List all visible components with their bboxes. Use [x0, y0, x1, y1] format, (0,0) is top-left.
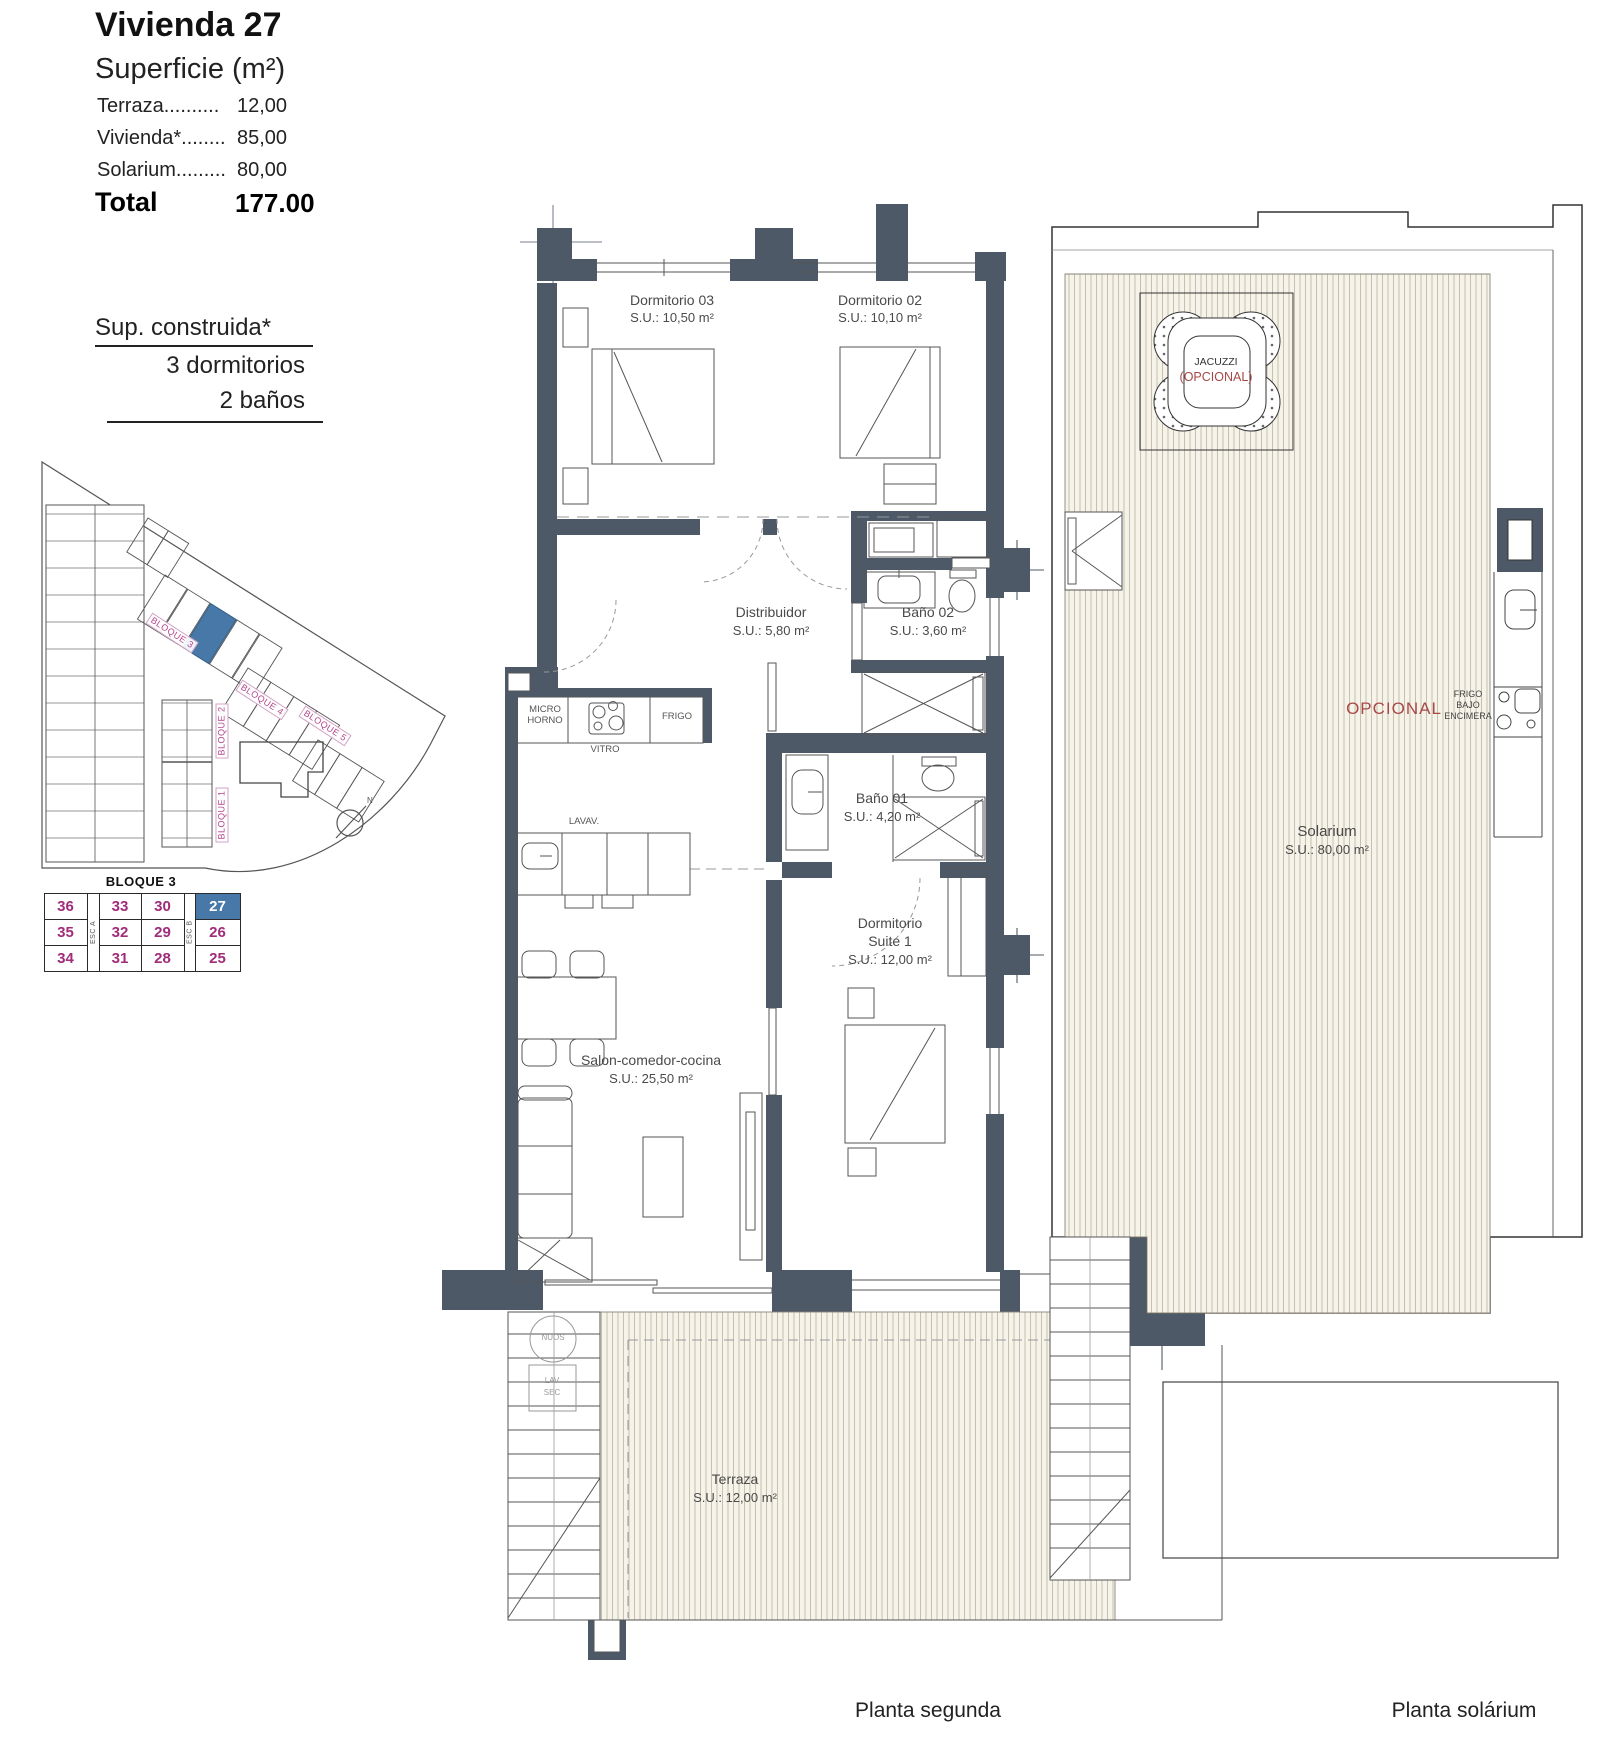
unit-cell: 36 — [44, 893, 88, 920]
room-label-dorm02: Dormitorio 02 — [838, 293, 922, 308]
total-value: 177.00 — [235, 190, 315, 217]
room-area-dorm03: S.U.: 10,50 m² — [630, 311, 714, 325]
surface-row-label: Solarium......... — [97, 159, 226, 182]
main-plan-stairs — [508, 1312, 600, 1620]
surface-row-value: 12,00 — [237, 95, 287, 118]
total-label: Total — [95, 188, 158, 216]
room-area-dorm02: S.U.: 10,10 m² — [838, 311, 922, 325]
room-label-suite-line2: Suite 1 — [868, 934, 912, 949]
fixture-label-vitro: VITRO — [590, 745, 619, 755]
svg-text:N: N — [367, 796, 373, 805]
room-label-dorm03: Dormitorio 03 — [630, 293, 714, 308]
unit-cell: 35 — [44, 919, 88, 946]
main-plan-furniture — [516, 308, 989, 1282]
room-label-suite-line1: Dormitorio — [858, 916, 923, 931]
divider — [107, 421, 323, 423]
jacuzzi-optional-label: (OPCIONAL) — [1180, 371, 1253, 384]
site-label-bloque2: BLOQUE 2 — [216, 703, 229, 758]
room-area-suite: S.U.: 12,00 m² — [848, 953, 932, 967]
room-label-bano01: Baño 01 — [856, 791, 908, 806]
fixture-label-lavav: LAVAV. — [569, 817, 599, 827]
fixture-label-micro: MICRO — [529, 705, 561, 715]
unit-cell: 29 — [141, 919, 185, 946]
fixture-label-frigo: FRIGO — [662, 712, 692, 722]
page-title: Vivienda 27 — [95, 8, 282, 44]
room-label-terraza: Terraza — [712, 1472, 759, 1487]
site-label-bloque1: BLOQUE 1 — [216, 787, 229, 842]
room-label-distribuidor: Distribuidor — [736, 605, 807, 620]
unit-cell: 31 — [99, 945, 142, 972]
bedrooms-count: 3 dormitorios — [95, 352, 305, 380]
surface-row-label: Vivienda*........ — [97, 127, 226, 150]
stair-core-b-label: ESC B — [184, 893, 196, 972]
opcional-label: OPCIONAL — [1346, 700, 1442, 718]
fixture-label-nuos: NUOS — [541, 1334, 564, 1342]
frigo-bajo-label-2: BAJO — [1456, 701, 1480, 710]
built-surface-title: Sup. construida* — [95, 314, 313, 347]
room-area-bano02: S.U.: 3,60 m² — [890, 624, 967, 638]
jacuzzi-label: JACUZZI — [1194, 357, 1237, 368]
unit-cell: 33 — [99, 893, 142, 920]
site-plan-drawing: N — [42, 462, 445, 872]
room-area-salon: S.U.: 25,50 m² — [609, 1072, 693, 1086]
unit-cell: 34 — [44, 945, 88, 972]
unit-cell: 28 — [141, 945, 185, 972]
fixture-label-lav: LAV — [545, 1377, 560, 1385]
floorplan-drawing: N — [0, 0, 1600, 1746]
skylight-icon — [1065, 512, 1122, 590]
frigo-bajo-label-3: ENCIMERA — [1444, 712, 1492, 721]
room-area-terraza: S.U.: 12,00 m² — [693, 1491, 777, 1505]
solarium-plan-drawing — [1050, 205, 1582, 1580]
stair-core-a-label: ESC A — [87, 893, 100, 972]
unit-cell-highlighted: 27 — [195, 893, 241, 920]
room-area-distribuidor: S.U.: 5,80 m² — [733, 624, 810, 638]
room-label-bano02: Baño 02 — [902, 605, 954, 620]
unit-cell: 30 — [141, 893, 185, 920]
fixture-label-sec: SEC — [544, 1389, 560, 1397]
unit-cell: 26 — [195, 919, 241, 946]
surface-row-label: Terraza.......... — [97, 95, 219, 118]
caption-planta-segunda: Planta segunda — [855, 1700, 1001, 1722]
fixture-label-horno: HORNO — [527, 716, 562, 726]
unit-cell: 25 — [195, 945, 241, 972]
surface-row-value: 80,00 — [237, 159, 287, 182]
room-area-solarium: S.U.: 80,00 m² — [1285, 843, 1369, 857]
room-label-solarium: Solarium — [1297, 824, 1356, 840]
caption-planta-solarium: Planta solárium — [1392, 1700, 1537, 1722]
surface-subtitle: Superficie (m²) — [95, 54, 285, 84]
solarium-stairs — [1050, 1237, 1130, 1580]
room-label-salon: Salon-comedor-cocina — [581, 1053, 721, 1068]
room-area-bano01: S.U.: 4,20 m² — [844, 810, 921, 824]
bathrooms-count: 2 baños — [95, 387, 305, 415]
surface-row-value: 85,00 — [237, 127, 287, 150]
solarium-kitchen-strip — [1494, 508, 1543, 837]
block-table: 36 ESC A 33 30 ESC B 27 35 32 29 26 34 3… — [44, 893, 240, 971]
unit-cell: 32 — [99, 919, 142, 946]
solarium-deck — [1065, 274, 1490, 1313]
block-table-title: BLOQUE 3 — [44, 874, 238, 889]
frigo-bajo-label-1: FRIGO — [1454, 690, 1483, 699]
